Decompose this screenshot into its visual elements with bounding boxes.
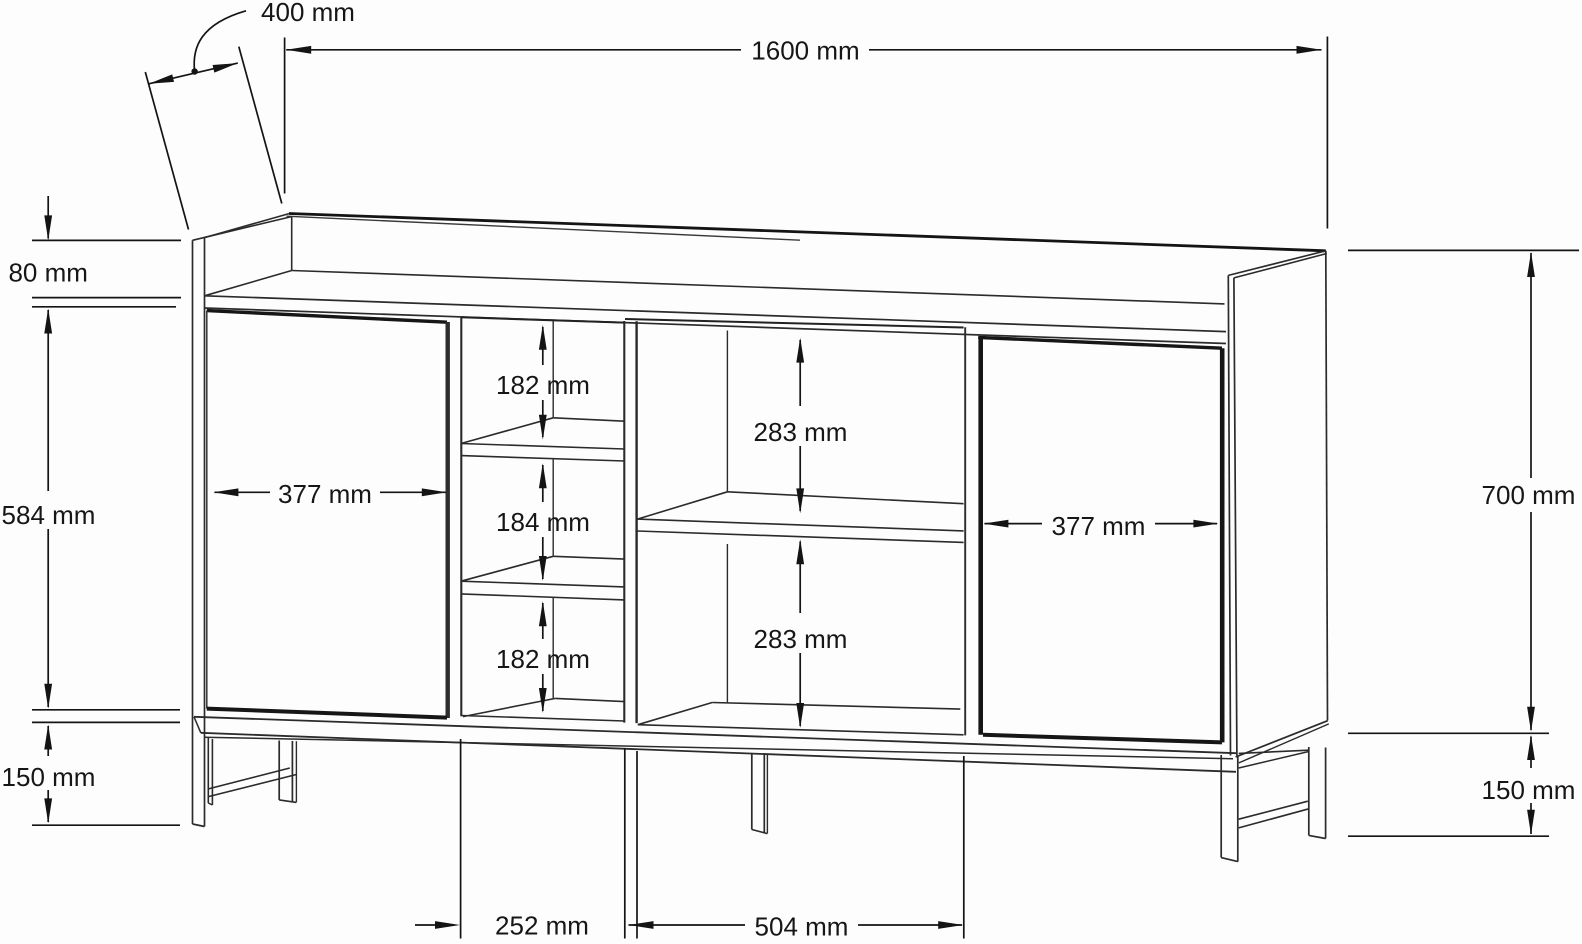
svg-text:150 mm: 150 mm: [1482, 775, 1576, 805]
svg-text:377 mm: 377 mm: [1052, 511, 1146, 541]
svg-text:400 mm: 400 mm: [261, 0, 355, 27]
svg-text:283 mm: 283 mm: [754, 417, 848, 447]
svg-text:252 mm: 252 mm: [495, 911, 589, 941]
svg-text:182 mm: 182 mm: [496, 370, 590, 400]
svg-text:584 mm: 584 mm: [2, 500, 96, 530]
svg-text:80 mm: 80 mm: [8, 258, 87, 288]
svg-text:283 mm: 283 mm: [754, 624, 848, 654]
svg-text:377 mm: 377 mm: [278, 479, 372, 509]
svg-text:150 mm: 150 mm: [2, 762, 96, 792]
svg-text:184 mm: 184 mm: [496, 507, 590, 537]
svg-text:504 mm: 504 mm: [755, 912, 849, 942]
svg-text:182 mm: 182 mm: [496, 644, 590, 674]
svg-text:1600 mm: 1600 mm: [751, 36, 859, 66]
svg-text:700 mm: 700 mm: [1482, 480, 1576, 510]
